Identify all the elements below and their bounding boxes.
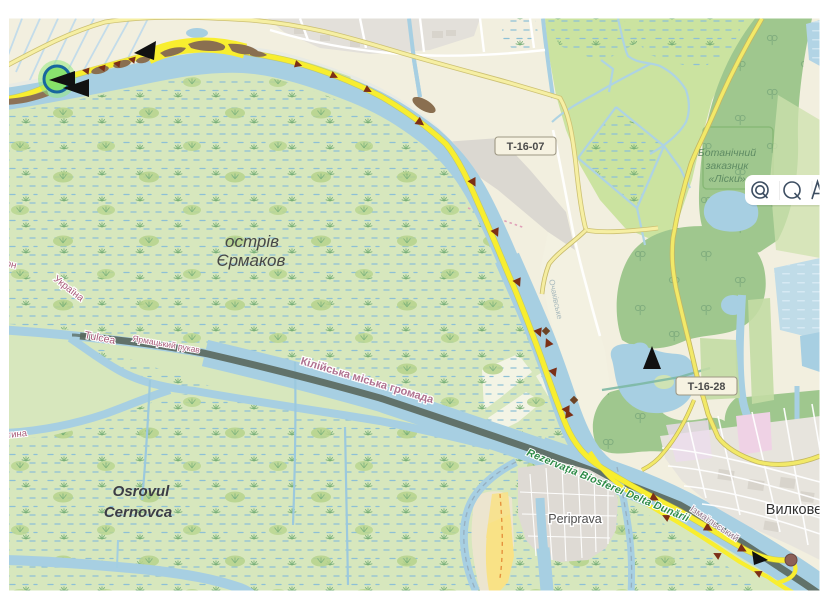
svg-text:гина: гина	[7, 428, 28, 441]
svg-text:«Ліски»: «Ліски»	[708, 173, 745, 185]
svg-text:Osrovul: Osrovul	[113, 483, 171, 500]
svg-text:Т-16-07: Т-16-07	[507, 141, 545, 153]
svg-text:острів: острів	[225, 232, 279, 251]
svg-text:Cernovca: Cernovca	[104, 504, 172, 521]
svg-text:Вилкове: Вилкове	[766, 502, 820, 518]
svg-text:Ботанічний: Ботанічний	[698, 147, 756, 159]
svg-text:заказник: заказник	[705, 160, 750, 172]
svg-text:Єрмаков: Єрмаков	[217, 251, 286, 270]
svg-text:Periprava: Periprava	[548, 512, 602, 526]
svg-text:Т-16-28: Т-16-28	[688, 381, 726, 393]
